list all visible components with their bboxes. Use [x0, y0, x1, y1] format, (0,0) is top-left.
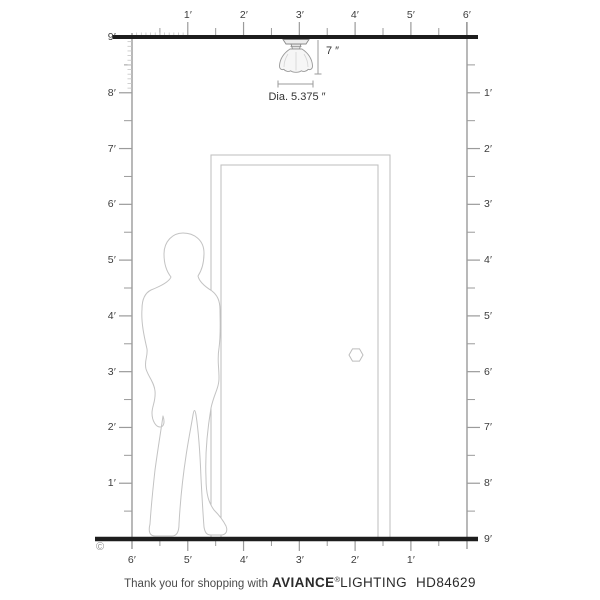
- ruler-label-bottom-2ft: 2′: [344, 553, 366, 567]
- door-knob: [349, 349, 363, 361]
- ruler-label-left-7ft: 7′: [78, 142, 116, 156]
- ruler-label-left-5ft: 5′: [78, 253, 116, 267]
- ruler-label-right-3ft: 3′: [484, 197, 492, 211]
- ruler-label-right-2ft: 2′: [484, 142, 492, 156]
- ruler-label-top-5ft: 5′: [400, 8, 422, 22]
- dimension-diagram: 1′ 2′ 3′ 4′ 5′ 6′ 6′ 5′ 4′ 3′ 2′ 1′ 9′ 8…: [0, 0, 600, 600]
- ruler-label-right-5ft: 5′: [484, 309, 492, 323]
- fixture-diameter-label: Dia. 5.375 ″: [249, 91, 345, 104]
- ruler-label-left-4ft: 4′: [78, 309, 116, 323]
- model-number: HD84629: [416, 575, 476, 590]
- ruler-label-right-7ft: 7′: [484, 420, 492, 434]
- footer-message: Thank you for shopping with: [124, 578, 268, 590]
- brand-name: AVIANCE: [272, 575, 335, 590]
- ruler-label-right-1ft: 1′: [484, 86, 492, 100]
- ruler-label-left-9ft: 9′: [78, 30, 116, 44]
- ruler-label-bottom-3ft: 3′: [289, 553, 311, 567]
- footer-text: Thank you for shopping withAVIANCE®LIGHT…: [0, 571, 600, 593]
- ruler-label-left-1ft: 1′: [78, 476, 116, 490]
- ruler-label-right-8ft: 8′: [484, 476, 492, 490]
- ruler-label-top-4ft: 4′: [344, 8, 366, 22]
- ruler-label-bottom-6ft: 6′: [121, 553, 143, 567]
- ruler-label-right-6ft: 6′: [484, 365, 492, 379]
- ruler-label-top-6ft: 6′: [456, 8, 478, 22]
- brand-name-secondary: LIGHTING: [340, 575, 407, 590]
- light-fixture: [279, 40, 312, 73]
- ruler-label-left-2ft: 2′: [78, 420, 116, 434]
- copyright-symbol: ©: [96, 541, 104, 553]
- ruler-label-bottom-4ft: 4′: [233, 553, 255, 567]
- ruler-label-left-3ft: 3′: [78, 365, 116, 379]
- door-outline: [211, 155, 390, 539]
- ruler-label-bottom-5ft: 5′: [177, 553, 199, 567]
- ruler-label-top-3ft: 3′: [289, 8, 311, 22]
- ruler-label-top-2ft: 2′: [233, 8, 255, 22]
- ruler-label-top-1ft: 1′: [177, 8, 199, 22]
- ruler-label-right-9ft: 9′: [484, 532, 492, 546]
- person-silhouette: [142, 233, 227, 536]
- ruler-label-right-4ft: 4′: [484, 253, 492, 267]
- fixture-height-label: 7 ″: [326, 45, 339, 58]
- ruler-label-bottom-1ft: 1′: [400, 553, 422, 567]
- ruler-label-left-8ft: 8′: [78, 86, 116, 100]
- ruler-label-left-6ft: 6′: [78, 197, 116, 211]
